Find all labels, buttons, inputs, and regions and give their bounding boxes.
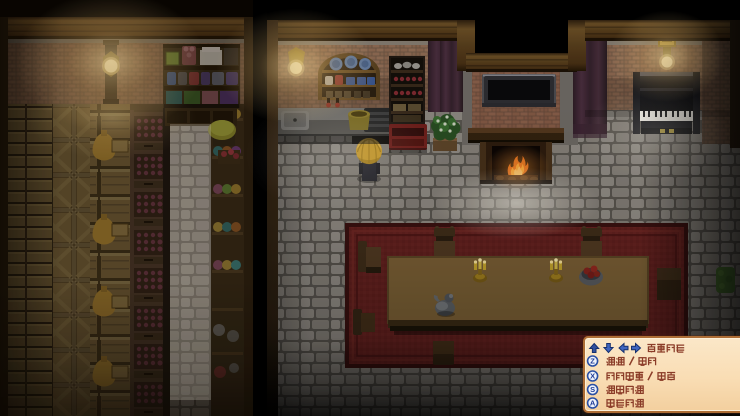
- svg-text:X: X: [590, 372, 595, 381]
- svg-text:Z: Z: [590, 357, 595, 366]
- svg-text:S: S: [590, 385, 595, 394]
- svg-text:A: A: [590, 399, 596, 408]
